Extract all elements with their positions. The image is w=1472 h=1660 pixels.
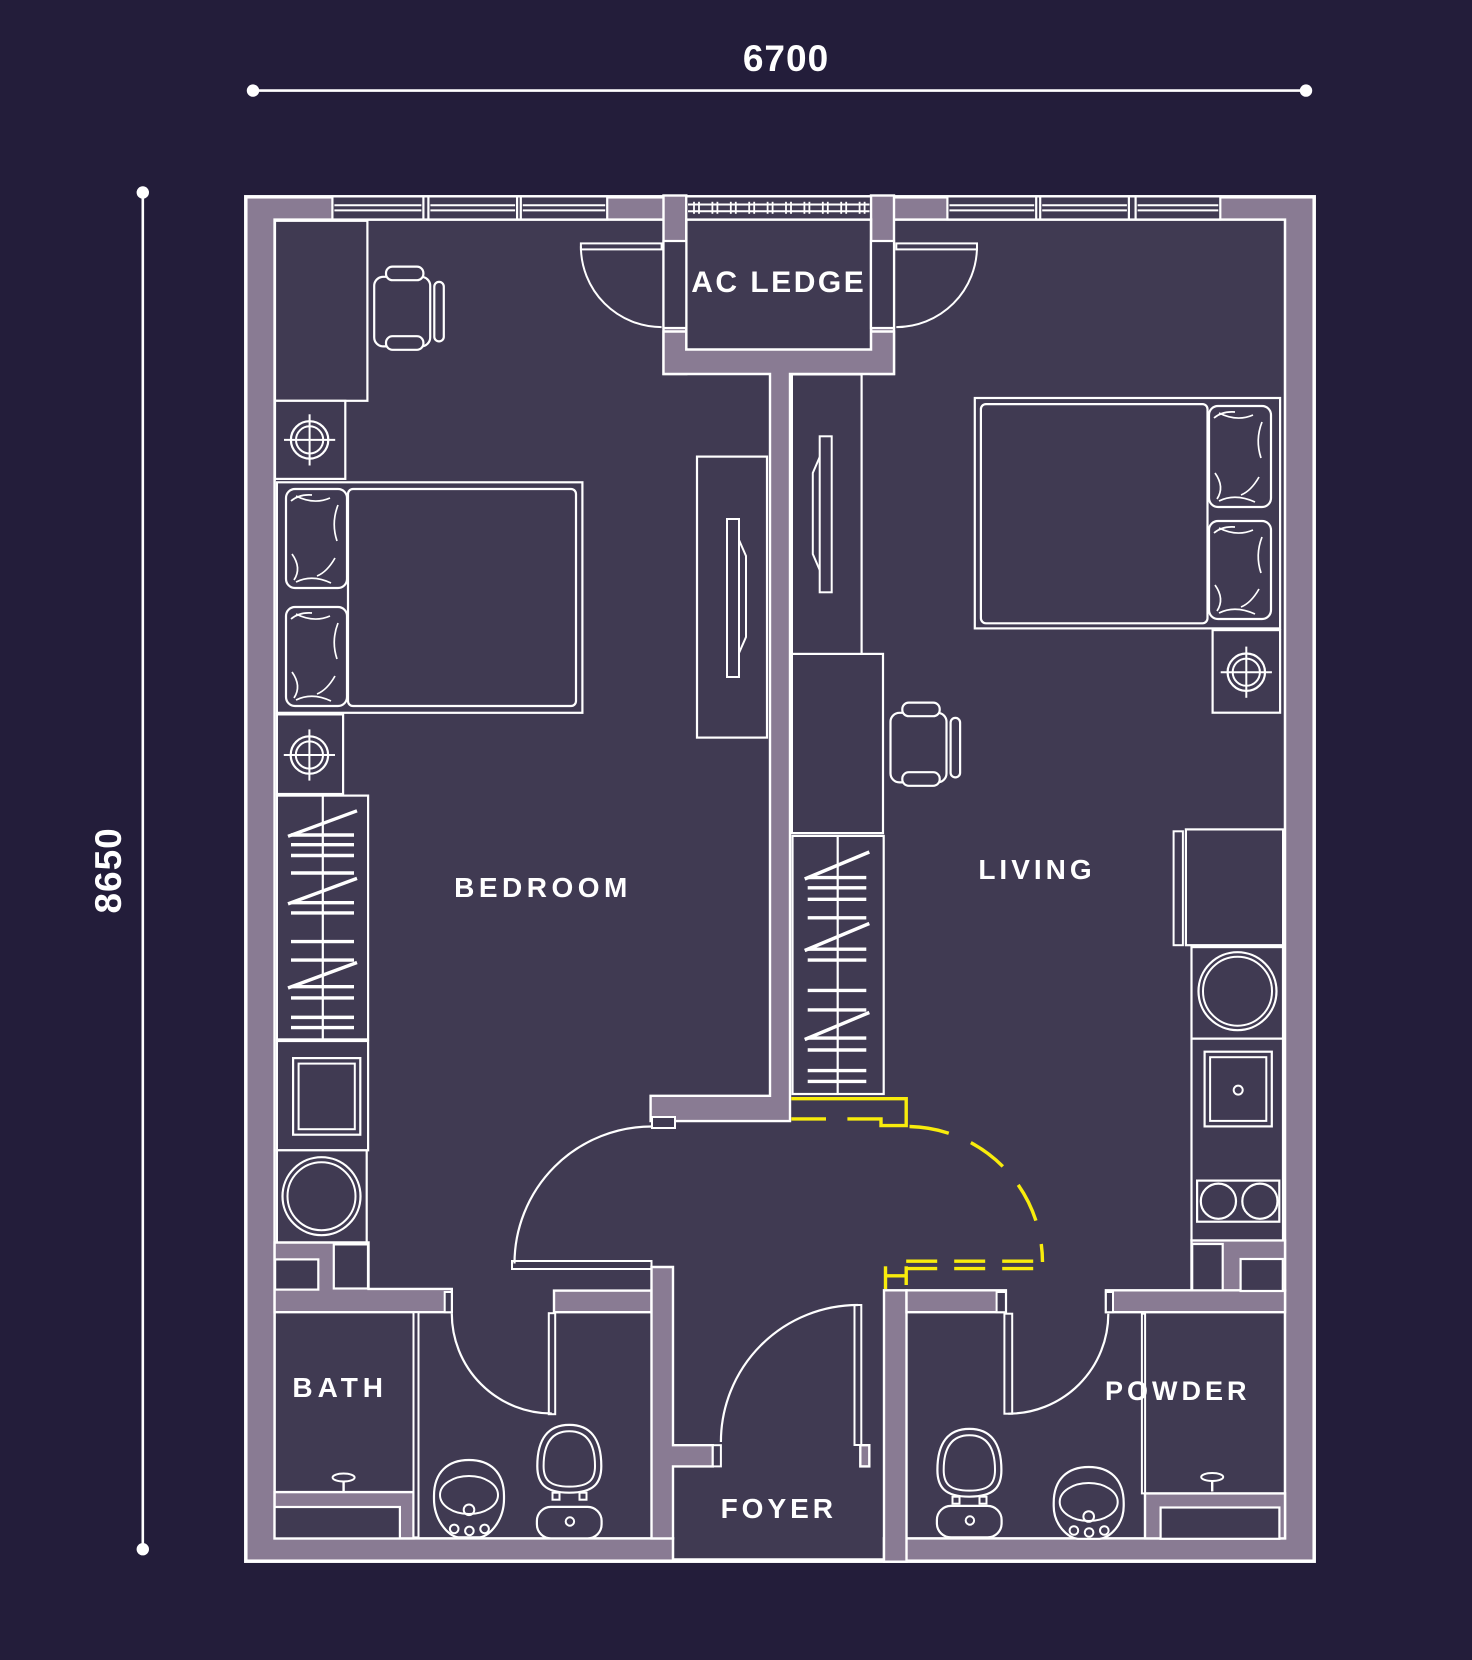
svg-text:FOYER: FOYER — [721, 1493, 837, 1524]
svg-text:LIVING: LIVING — [978, 854, 1095, 885]
svg-text:6700: 6700 — [743, 38, 829, 79]
svg-text:AC LEDGE: AC LEDGE — [691, 266, 866, 299]
svg-text:BATH: BATH — [292, 1372, 388, 1403]
svg-text:BEDROOM: BEDROOM — [454, 872, 632, 903]
svg-text:POWDER: POWDER — [1105, 1376, 1251, 1406]
svg-text:8650: 8650 — [88, 827, 129, 913]
